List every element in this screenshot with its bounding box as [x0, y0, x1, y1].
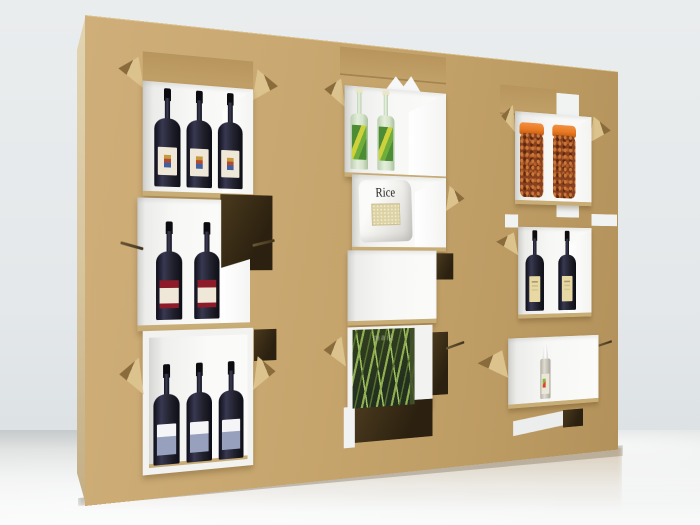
green-glass-bottle — [350, 87, 368, 169]
cutout-sliver — [592, 214, 617, 226]
cutout-sliver — [344, 407, 355, 449]
bottle-body — [219, 390, 244, 460]
cardboard-flap — [324, 77, 345, 107]
label-crest — [227, 157, 233, 170]
bottle-row — [508, 335, 598, 405]
spray-label — [541, 374, 549, 394]
bottle-body — [194, 251, 219, 319]
box-side-wall — [415, 177, 446, 248]
bottle-body — [526, 254, 544, 311]
cutout-hole — [437, 253, 454, 279]
wine-label — [190, 421, 209, 453]
cardboard-flap — [496, 232, 518, 255]
shelf-box-right-bottom — [508, 335, 598, 409]
spray-cap — [543, 344, 549, 358]
jar-body — [553, 135, 575, 199]
wine-label — [529, 276, 540, 302]
green-glass-bottle — [377, 90, 394, 171]
cutout-hole — [563, 408, 583, 427]
wine-label — [190, 149, 209, 177]
box-side-wall — [220, 259, 250, 324]
spice-jar — [553, 124, 575, 198]
cardboard-flap — [589, 116, 611, 144]
bottle-row — [143, 81, 253, 195]
bottle-row — [137, 197, 221, 326]
wine-bottle — [194, 222, 219, 319]
product-display-render: Rice maiz — [0, 0, 700, 525]
flap-edge — [446, 341, 465, 350]
flap-edge — [598, 340, 612, 347]
cardboard-flap — [118, 55, 143, 88]
wine-bottle — [187, 90, 212, 188]
cutout-sliver — [505, 214, 518, 227]
bottle-label — [379, 127, 393, 161]
wine-label — [222, 418, 240, 449]
rice-bag: Rice — [358, 180, 412, 243]
rice-photo — [371, 203, 400, 225]
grass-cereal-box: maiz — [353, 328, 415, 409]
cutout-hole — [254, 329, 276, 361]
label-crest — [196, 156, 202, 169]
bottle-body — [558, 255, 576, 311]
grass-box-label: maiz — [353, 332, 415, 344]
bottle-body — [154, 117, 180, 187]
cutout-hole — [432, 332, 447, 395]
wine-bottle — [218, 92, 243, 189]
shelf-box-right-top — [515, 111, 592, 206]
bottle-body — [187, 119, 212, 188]
wine-label — [562, 276, 573, 302]
cardboard-flap — [252, 69, 278, 102]
bottle-body — [218, 121, 243, 189]
wine-label — [157, 423, 176, 455]
shelf-box-right-middle — [518, 227, 591, 319]
bottle-row — [143, 328, 253, 476]
wine-bottle — [154, 87, 180, 187]
spray-bottle — [540, 344, 550, 399]
label-crest — [164, 155, 171, 168]
wine-bottle — [153, 364, 179, 466]
wine-label — [221, 150, 239, 178]
bottle-row — [345, 85, 446, 176]
cutout-recess — [340, 46, 446, 84]
cardboard-flap — [119, 357, 143, 395]
jar-row — [515, 111, 592, 202]
bottle-label — [352, 125, 367, 160]
bottle-body — [153, 394, 179, 466]
cutout-piece — [513, 411, 563, 436]
bottle-body — [156, 251, 182, 320]
wine-label — [158, 147, 177, 175]
display-wall-panel: Rice maiz — [85, 15, 618, 506]
spice-jar — [520, 122, 543, 198]
bottle-row — [518, 227, 591, 315]
wine-bottle — [156, 221, 182, 320]
wine-label — [198, 280, 217, 307]
cutout-slot — [556, 204, 578, 217]
jar-body — [520, 132, 543, 197]
bottle-body — [187, 392, 212, 463]
shelf-box-middle-1 — [345, 85, 446, 181]
wine-label — [159, 280, 178, 308]
shelf-box-left-top — [143, 81, 253, 199]
shelf-box-middle-2: Rice — [352, 174, 446, 251]
wine-bottle — [526, 230, 544, 311]
bottle-neck — [357, 92, 362, 117]
wine-bottle — [187, 362, 212, 463]
shelf-box-left-middle — [137, 197, 221, 331]
rice-label: Rice — [375, 186, 395, 201]
cardboard-flap — [478, 350, 509, 380]
shelf-box-left-bottom — [143, 328, 253, 476]
cardboard-flap — [324, 336, 346, 367]
wine-bottle — [558, 231, 576, 311]
cardboard-flap — [446, 186, 465, 212]
wine-bottle — [219, 361, 244, 460]
shelf-box-middle-3-empty — [347, 250, 436, 325]
cutout-hole — [220, 194, 272, 270]
